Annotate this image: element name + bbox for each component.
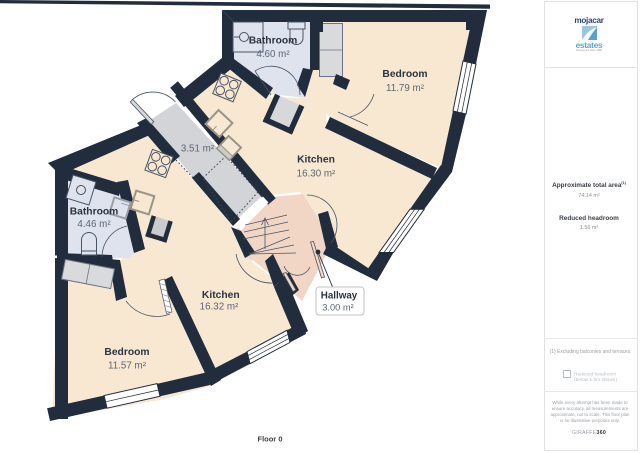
svg-text:4.60 m²: 4.60 m² xyxy=(256,49,290,60)
svg-text:16.32 m²: 16.32 m² xyxy=(200,302,239,313)
svg-text:11.57 m²: 11.57 m² xyxy=(108,361,147,372)
svg-text:Bathroom: Bathroom xyxy=(70,207,119,218)
svg-text:Kitchen: Kitchen xyxy=(202,290,240,301)
svg-text:Hallway: Hallway xyxy=(321,291,358,302)
svg-text:Bathroom: Bathroom xyxy=(249,36,298,47)
svg-text:11.79 m²: 11.79 m² xyxy=(386,83,425,94)
svg-text:Kitchen: Kitchen xyxy=(297,155,335,166)
svg-text:4.46 m²: 4.46 m² xyxy=(77,219,111,230)
svg-text:16.30 m²: 16.30 m² xyxy=(297,169,336,180)
svg-text:3.51 m²: 3.51 m² xyxy=(181,144,215,155)
svg-text:Bedroom: Bedroom xyxy=(382,69,427,80)
svg-text:3.00 m²: 3.00 m² xyxy=(322,303,354,313)
svg-text:Floor 0: Floor 0 xyxy=(257,435,282,444)
svg-text:Bedroom: Bedroom xyxy=(104,347,149,358)
